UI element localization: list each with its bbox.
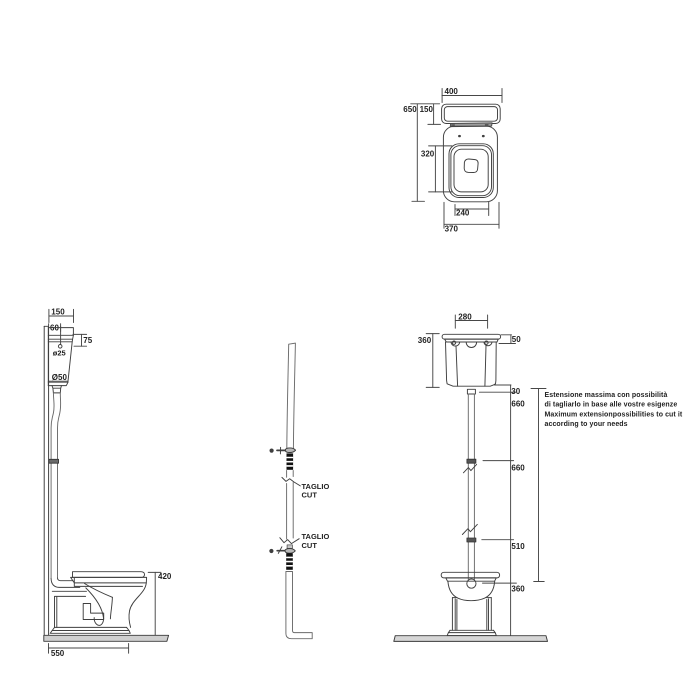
svg-text:280: 280 bbox=[458, 312, 472, 321]
svg-text:75: 75 bbox=[83, 336, 92, 345]
svg-text:420: 420 bbox=[158, 572, 172, 581]
svg-text:360: 360 bbox=[418, 336, 432, 345]
svg-text:400: 400 bbox=[445, 87, 459, 96]
svg-text:30: 30 bbox=[511, 387, 520, 396]
svg-text:650: 650 bbox=[403, 105, 417, 114]
svg-text:Ø50: Ø50 bbox=[52, 373, 68, 382]
svg-text:Estensione massima con possib: Estensione massima con possibilità bbox=[545, 392, 668, 399]
svg-text:according to your needs: according to your needs bbox=[545, 421, 628, 428]
svg-text:150: 150 bbox=[420, 105, 434, 114]
svg-text:320: 320 bbox=[421, 149, 435, 158]
svg-text:510: 510 bbox=[511, 542, 525, 551]
svg-text:50: 50 bbox=[512, 335, 521, 344]
svg-text:660: 660 bbox=[511, 464, 525, 473]
svg-text:Maximum extensionpossibilities: Maximum extensionpossibilities to cut it bbox=[545, 411, 683, 418]
svg-text:TAGLIO: TAGLIO bbox=[302, 532, 330, 541]
svg-text:CUT: CUT bbox=[302, 541, 318, 550]
svg-text:550: 550 bbox=[51, 649, 65, 658]
svg-text:60: 60 bbox=[50, 324, 59, 333]
svg-text:370: 370 bbox=[445, 224, 459, 233]
svg-text:660: 660 bbox=[511, 399, 525, 408]
svg-text:150: 150 bbox=[51, 307, 65, 316]
svg-text:CUT: CUT bbox=[302, 491, 318, 500]
svg-text:360: 360 bbox=[511, 585, 525, 594]
svg-text:ø25: ø25 bbox=[53, 349, 66, 358]
svg-text:di tagliarlo in base alle vost: di tagliarlo in base alle vostre esigenz… bbox=[545, 402, 678, 409]
svg-text:240: 240 bbox=[456, 208, 470, 217]
